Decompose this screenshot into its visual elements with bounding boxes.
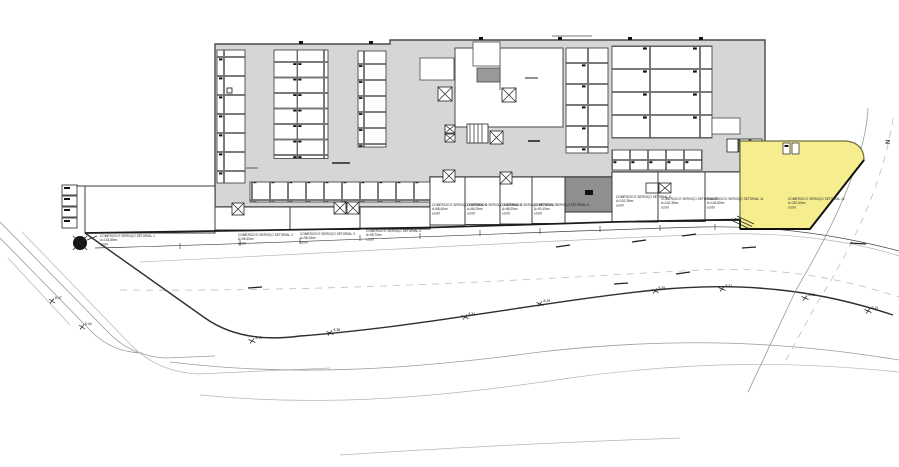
unit-3-label: COMÉRCIO E SERVIÇO SETORIAL 3A=98,15m²±0… (300, 231, 355, 244)
elevation-marker: 8.21 (719, 284, 733, 292)
svg-text:±0,00: ±0,00 (788, 205, 796, 209)
svg-text:±0,00: ±0,00 (432, 211, 440, 215)
unit-4-label: COMÉRCIO E SERVIÇO SETORIAL 4A=95,70m²±0… (366, 228, 421, 241)
hall-room (455, 48, 563, 127)
elevation-marker: 8.47 (49, 296, 62, 304)
end-room (712, 118, 740, 134)
parking-bank-right-2 (612, 46, 712, 138)
elevation-marker: 8.38 (327, 328, 341, 336)
elevation-marker: 8.41 (249, 336, 263, 344)
svg-text:8.44: 8.44 (85, 322, 92, 326)
parking-row-bottom-right (612, 150, 702, 170)
svg-text:8.12: 8.12 (872, 306, 879, 310)
svg-text:8.34: 8.34 (469, 312, 476, 316)
svg-text:8.38: 8.38 (334, 328, 341, 332)
svg-text:8.41: 8.41 (256, 336, 263, 340)
unit-4[interactable] (360, 207, 430, 229)
road-far-edge-1 (170, 343, 899, 370)
svg-text:8.47: 8.47 (55, 296, 62, 300)
unit-5[interactable] (430, 177, 465, 225)
svg-text:±0,00: ±0,00 (366, 237, 374, 241)
sidewalk-line-2 (140, 234, 899, 262)
stair-room (467, 124, 488, 143)
unit-2[interactable] (215, 207, 290, 230)
svg-text:±0,00: ±0,00 (616, 203, 624, 207)
svg-text:8.25: 8.25 (659, 286, 666, 290)
svg-text:±0,00: ±0,00 (300, 240, 308, 244)
service-core-mark (585, 190, 593, 195)
stair-x-core-1 (438, 87, 452, 101)
elevation-markers: 8.47 8.44 8.41 8.38 8.34 8.29 8.25 8.21 … (49, 284, 878, 344)
floor-plan-page: 8.47 8.44 8.41 8.38 8.34 8.29 8.25 8.21 … (0, 0, 899, 467)
svg-text:±0,00: ±0,00 (534, 211, 542, 215)
elevation-marker: 8.16 (802, 293, 816, 301)
street-edge-left-2 (0, 238, 142, 353)
svg-text:8.16: 8.16 (809, 293, 816, 297)
svg-text:8.21: 8.21 (726, 284, 733, 288)
svg-text:±0,00: ±0,00 (467, 211, 475, 215)
unit-6[interactable] (465, 177, 500, 225)
utility-boxes (62, 185, 77, 228)
north-indicator: N (886, 140, 892, 144)
site-plan-canvas: 8.47 8.44 8.41 8.38 8.34 8.29 8.25 8.21 … (0, 0, 899, 467)
unit-1-label: COMÉRCIO E SERVIÇO SETORIAL 1A=143,85m²±… (100, 233, 155, 246)
road-centerline (120, 269, 899, 297)
parking-bank-left-wall (217, 50, 245, 183)
stair-x-core-2 (502, 88, 516, 102)
lot-boundary-curb (85, 233, 893, 338)
elevation-marker: 8.44 (79, 322, 92, 330)
street-edge-left-3 (22, 232, 330, 374)
unit-8[interactable] (532, 177, 565, 224)
svg-text:±0,00: ±0,00 (502, 211, 510, 215)
parking-bank-center-2 (358, 51, 386, 147)
elevation-marker: 8.29 (537, 299, 551, 307)
svg-text:±0,00: ±0,00 (238, 241, 246, 245)
unit-1[interactable] (85, 186, 215, 233)
road-markings (248, 234, 866, 288)
svg-text:±0,00: ±0,00 (661, 205, 669, 209)
parking-row-bottom-left (250, 182, 430, 202)
road-far-edge-3 (340, 438, 680, 455)
shop-core-x-1 (232, 203, 244, 215)
parking-bank-center (274, 50, 328, 159)
shop-core-x-3 (443, 170, 455, 182)
svg-text:8.29: 8.29 (544, 299, 551, 303)
stair-x-core-3 (490, 131, 503, 144)
svg-text:±0,00: ±0,00 (707, 205, 715, 209)
street-edge-left-4 (8, 258, 70, 325)
svg-text:±0,00: ±0,00 (100, 242, 108, 246)
shop-core-x-4 (500, 172, 512, 184)
parking-bank-right-1 (566, 48, 608, 153)
